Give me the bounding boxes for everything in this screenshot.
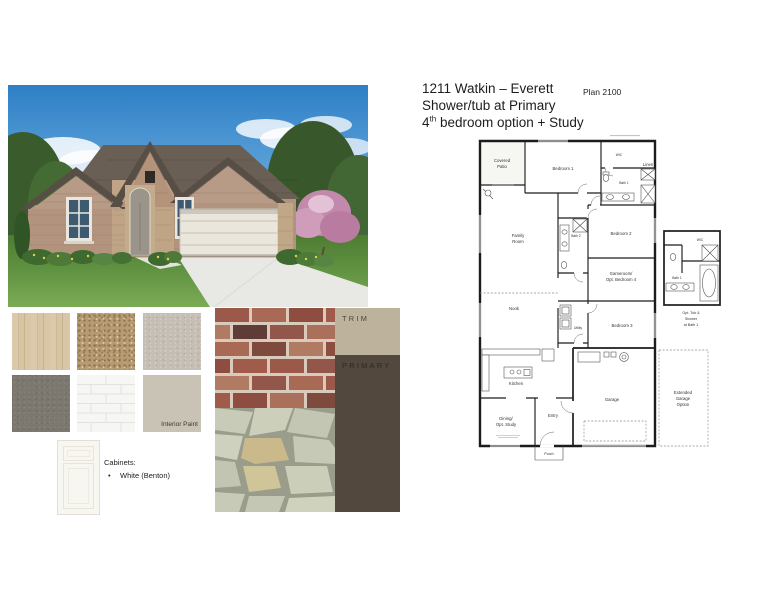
patio-fill [481,142,524,184]
label-family-room-1: Family [512,233,526,238]
primary-color-panel: PRIMARY [335,355,400,512]
primary-label: PRIMARY [342,361,391,370]
plan-option-1: Shower/tub at Primary [422,97,767,114]
label-porch: Porch [544,452,553,456]
inset-bath1-label: Bath 1 [672,276,682,280]
label-entry: Entry [548,413,559,418]
cabinet-drawer [63,446,94,461]
interior-paint-label: Interior Paint [161,421,198,428]
label-bedroom1: Bedroom 1 [552,166,574,171]
exterior-walls [480,141,655,446]
title-block: 1211 Watkin – Everett Shower/tub at Prim… [422,80,767,134]
swatch-carpet [77,313,135,370]
swatch-brick [215,308,335,408]
label-covered-patio-2: Patio [497,164,507,169]
label-gameroom-2: Opt. Bedroom 4 [606,277,637,282]
swatch-interior-paint: Interior Paint [143,375,201,432]
bullet: • [104,471,120,480]
label-family-room-2: Room [512,239,524,244]
label-nook: Nook [509,306,520,311]
swatch-flagstone [215,408,335,512]
design-selection-sheet: { "header": { "line1": "1211 Watkin – Ev… [0,0,777,600]
corner-stone-column [278,203,293,257]
label-wic: WIC [616,153,623,157]
inset-caption-1: Opt. Tub & [682,311,700,315]
ext-garage-label-2: Garage [676,396,691,401]
ext-garage-label-3: Option [677,402,690,407]
front-door [125,185,155,257]
bath1-option-inset: WIC Bath 1 Opt. Tub & Shower at Bath 1 [664,231,720,327]
swatch-stone-texture [143,313,201,370]
cabinets-heading: Cabinets: [104,458,224,467]
cabinet-door-panel [63,463,94,509]
trim-color-panel: TRIM [335,308,400,355]
cabinets-note: Cabinets: •White (Benton) [104,458,224,480]
label-bedroom3: Bedroom 3 [611,323,633,328]
extended-garage-option: Extended Garage Option [674,390,693,407]
subway-tile-pattern [77,375,135,432]
floor-plan-drawing: Extended Garage Option WIC Bath 1 Opt. T… [478,133,728,465]
brick-pattern [215,308,335,408]
label-linen: Linen [643,162,654,167]
plan-number: Plan 2100 [583,87,621,97]
inset-caption-2: Shower [685,317,698,321]
label-bath2: Bath 2 [571,234,581,238]
front-window [64,197,94,244]
plan-option-2: 4th bedroom option + Study [422,114,767,131]
house-rendering-scene [8,85,368,307]
interior-walls [480,141,655,446]
trim-label: TRIM [342,314,369,323]
label-covered-patio-1: Covered [494,158,511,163]
label-bedroom2: Bedroom 2 [610,231,632,236]
label-utility: Utility [574,326,582,330]
ext-garage-label-1: Extended [674,390,693,395]
label-garage: Garage [605,397,620,402]
flagstone-pattern [215,408,335,512]
inset-caption-3: at Bath 1 [684,323,698,327]
door-arcs [540,168,613,446]
label-dining-1: Dining/ [499,416,513,421]
gable-vent [145,171,155,183]
label-bath1: Bath 1 [619,181,629,185]
house-rendering [8,85,368,307]
swatch-subway-tile [77,375,135,432]
label-dining-2: Opt. Study [496,422,517,427]
floor-plan: Extended Garage Option WIC Bath 1 Opt. T… [478,133,728,465]
cabinets-item: •White (Benton) [104,471,224,480]
inset-wic-label: WIC [697,238,704,242]
swatch-wood-flooring [12,313,70,370]
label-gameroom-1: Gameroom/ [610,271,633,276]
swatch-white-cabinet-door [57,440,100,515]
garage-door [180,209,278,256]
swatch-dark-gray-flooring [12,375,70,432]
label-kitchen: Kitchen [509,381,524,386]
